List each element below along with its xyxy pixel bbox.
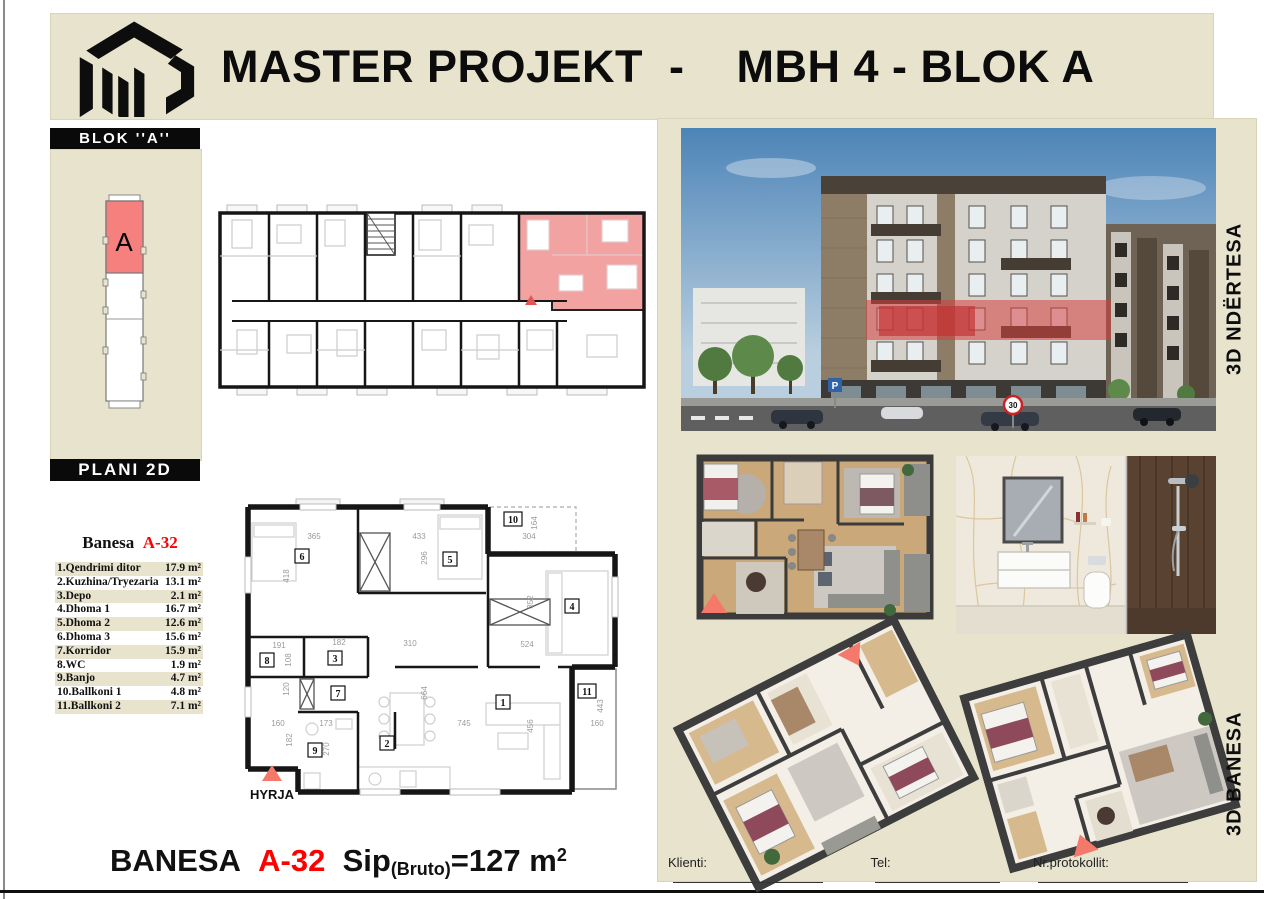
stairwell [367, 213, 395, 255]
bathroom-3d-render [956, 456, 1216, 634]
renders-panel: 30 P 3D NDËRTESA [657, 118, 1257, 882]
svg-text:5: 5 [448, 555, 453, 566]
svg-text:160: 160 [271, 719, 285, 728]
master-projekt-logo [51, 14, 221, 119]
svg-text:30: 30 [1009, 401, 1018, 410]
svg-text:456: 456 [526, 719, 535, 733]
svg-text:745: 745 [457, 719, 471, 728]
caption-3d-banesa: 3D BANESA [1216, 664, 1254, 884]
unit-area-table: 1.Qendrimi ditor17.9 m² 2.Kuzhina/Tryeza… [55, 562, 203, 714]
table-row: 2.Kuzhina/Tryezaria13.1 m² [55, 576, 203, 590]
render-direction-arrow [701, 593, 727, 613]
block-letter: A [115, 227, 133, 257]
svg-text:270: 270 [322, 742, 331, 756]
summary-sip: Sip [343, 843, 391, 878]
blok-a-label: BLOK ''A'' [79, 130, 171, 147]
table-row: 11.Ballkoni 27.1 m² [55, 700, 203, 714]
summary-banesa: BANESA [110, 843, 241, 878]
svg-text:182: 182 [285, 733, 294, 747]
klienti-line [673, 870, 823, 883]
svg-text:2: 2 [385, 739, 390, 750]
client-footer: Klienti: Tel: Nr.protokollit: [668, 855, 1243, 886]
svg-text:9: 9 [313, 746, 318, 757]
summary-line: BANESA A-32 Sip(Bruto)=127 m2 [110, 843, 567, 880]
svg-text:120: 120 [282, 682, 291, 696]
building-3d-render: 30 P [681, 128, 1216, 431]
svg-text:108: 108 [284, 653, 293, 667]
unit-table-title-prefix: Banesa [82, 533, 134, 552]
svg-text:164: 164 [530, 516, 539, 530]
entrance-label: HYRJA [250, 787, 295, 802]
table-row: 9.Banjo4.7 m² [55, 672, 203, 686]
svg-text:7: 7 [336, 689, 341, 700]
svg-text:352: 352 [526, 595, 535, 609]
svg-text:296: 296 [420, 551, 429, 565]
svg-text:8: 8 [265, 656, 270, 667]
apartment-iso-render-2 [968, 634, 1238, 869]
apartment-iso-render-1 [683, 639, 973, 867]
shower [1126, 456, 1216, 634]
apartment-topdown-render [694, 454, 936, 626]
table-row: 1.Qendrimi ditor17.9 m² [55, 562, 203, 576]
svg-text:11: 11 [582, 687, 591, 698]
table-row: 5.Dhoma 212.6 m² [55, 617, 203, 631]
header: MASTER PROJEKT - MBH 4 - BLOK A [50, 13, 1214, 120]
table-row: 3.Depo2.1 m² [55, 590, 203, 604]
plani-2d-label: PLANI 2D [78, 460, 171, 480]
svg-text:664: 664 [420, 686, 429, 700]
summary-unit-code: A-32 [258, 843, 325, 878]
svg-text:P: P [832, 381, 839, 392]
protokoll-label: Nr.protokollit: [1033, 855, 1109, 870]
svg-text:1: 1 [501, 698, 506, 709]
block-section-diagram: A [51, 151, 201, 459]
unit-code: A-32 [143, 533, 178, 552]
building-front [821, 176, 1111, 408]
table-row: 8.WC1.9 m² [55, 659, 203, 673]
apartment-2d-plan: 1 2 3 4 5 6 7 8 9 10 11 365 433 304 296 … [240, 497, 630, 815]
protokoll-line [1038, 870, 1188, 883]
block-section-panel: A [50, 149, 202, 461]
table-row: 10.Ballkoni 14.8 m² [55, 686, 203, 700]
svg-text:443: 443 [596, 699, 605, 713]
summary-sup: 2 [557, 845, 567, 865]
page-bottom-border [0, 890, 1264, 893]
page-title: MASTER PROJEKT - MBH 4 - BLOK A [221, 41, 1094, 93]
svg-text:433: 433 [412, 532, 426, 541]
blok-a-bar: BLOK ''A'' [50, 128, 200, 149]
svg-text:4: 4 [570, 602, 575, 613]
tel-label: Tel: [870, 855, 890, 870]
klienti-label: Klienti: [668, 855, 707, 870]
svg-text:182: 182 [332, 638, 346, 647]
plani-2d-bar: PLANI 2D [50, 459, 200, 481]
page-left-border [3, 0, 5, 899]
svg-text:524: 524 [520, 640, 534, 649]
svg-text:365: 365 [307, 532, 321, 541]
svg-text:173: 173 [319, 719, 333, 728]
building-floor-plan [207, 125, 657, 480]
unit-table-title: Banesa A-32 [55, 533, 205, 553]
table-row: 7.Korridor15.9 m² [55, 645, 203, 659]
logo-icon [61, 17, 211, 117]
summary-value: =127 m [451, 843, 557, 878]
tel-line [875, 870, 1000, 883]
svg-text:10: 10 [508, 515, 518, 526]
svg-text:160: 160 [590, 719, 604, 728]
svg-text:304: 304 [522, 532, 536, 541]
table-row: 6.Dhoma 315.6 m² [55, 631, 203, 645]
summary-bruto: (Bruto) [391, 859, 451, 879]
svg-text:6: 6 [300, 552, 305, 563]
svg-text:191: 191 [272, 641, 286, 650]
table-row: 4.Dhoma 116.7 m² [55, 603, 203, 617]
svg-text:310: 310 [403, 639, 417, 648]
svg-text:418: 418 [282, 569, 291, 583]
svg-text:3: 3 [333, 654, 338, 665]
caption-3d-ndertesa: 3D NDËRTESA [1216, 149, 1254, 449]
